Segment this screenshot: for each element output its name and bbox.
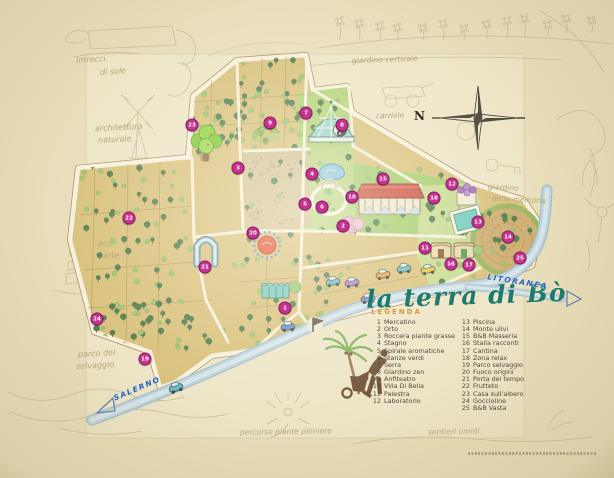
legend-column-2: 13Piscina14Monte ulivi15B&B Masseria16St… <box>460 319 566 412</box>
map-marker-22: 22 <box>123 212 136 225</box>
map-marker-10: 10 <box>346 191 359 204</box>
pencil-note: di sole <box>100 66 127 77</box>
map-marker-11: 11 <box>419 242 432 255</box>
pencil-note: eco <box>98 239 113 248</box>
pond <box>319 164 344 180</box>
map-marker-14: 14 <box>502 231 515 244</box>
map-marker-13: 13 <box>472 216 485 229</box>
credit-line <box>468 452 596 455</box>
compass-north-label: N <box>414 109 425 123</box>
map-marker-18: 18 <box>428 192 441 205</box>
legend-item: 25B&B Vasta <box>460 405 566 412</box>
map-poster: la terra di Bò LEGENDA 1Mercatino2Orto3R… <box>0 0 614 478</box>
legend-header: LEGENDA <box>371 308 586 316</box>
map-marker-25: 25 <box>514 252 527 265</box>
legend-column-1: 1Mercatino2Orto3Roccera piante grasse4St… <box>371 319 460 412</box>
map-marker-7: 7 <box>300 107 313 120</box>
pencil-note: naturale <box>98 134 132 145</box>
pencil-note: carriole <box>376 111 405 121</box>
map-marker-17: 17 <box>463 259 476 272</box>
map-marker-6: 6 <box>316 201 329 214</box>
pencil-note: giardino <box>488 182 519 193</box>
map-marker-24: 24 <box>91 313 104 326</box>
map-marker-9: 9 <box>264 117 277 130</box>
map-marker-15: 15 <box>377 173 390 186</box>
legend-item: 12Laboratorio <box>371 398 460 405</box>
map-marker-4: 4 <box>306 168 319 181</box>
villa-building <box>355 184 424 214</box>
map-marker-3: 3 <box>232 162 245 175</box>
map-marker-8: 8 <box>336 119 349 132</box>
map-marker-21: 21 <box>199 261 212 274</box>
map-marker-19: 19 <box>139 353 152 366</box>
legend: LEGENDA 1Mercatino2Orto3Roccera piante g… <box>371 308 586 412</box>
pencil-note: arte <box>103 251 120 261</box>
map-marker-20: 20 <box>247 227 260 240</box>
map-marker-2: 2 <box>337 220 350 233</box>
map-marker-5: 5 <box>299 198 312 211</box>
pencil-note: percorso piante pioniere <box>240 426 332 437</box>
farm-hut <box>431 243 451 258</box>
map-marker-16: 16 <box>445 258 458 271</box>
map-marker-1: 1 <box>279 302 292 315</box>
map-marker-23: 23 <box>186 119 199 132</box>
map-marker-12: 12 <box>446 178 459 191</box>
entrance-sign <box>307 317 323 333</box>
pencil-note: sentieri umidi <box>428 427 480 437</box>
